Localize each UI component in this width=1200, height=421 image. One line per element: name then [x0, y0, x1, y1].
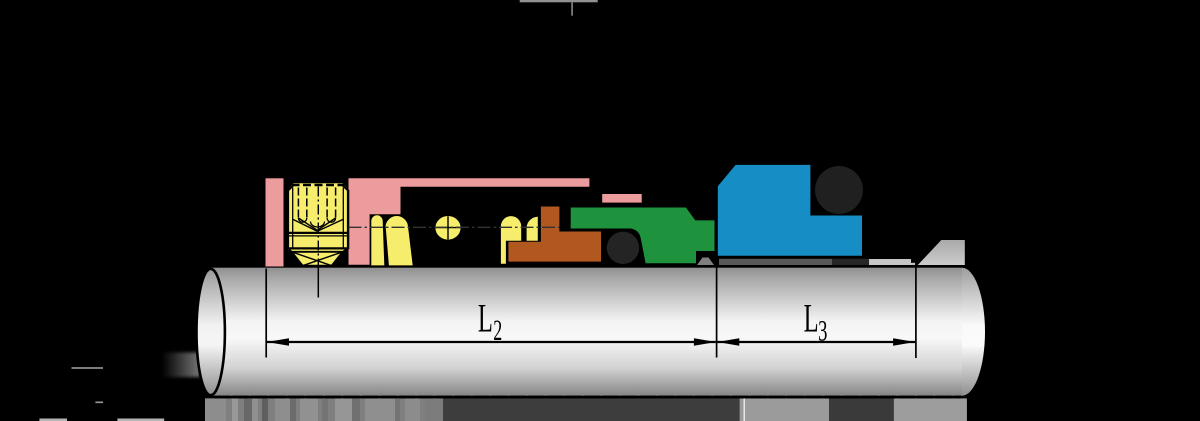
- svg-text:2: 2: [493, 314, 502, 347]
- svg-text:L: L: [804, 296, 819, 341]
- svg-text:3: 3: [818, 315, 827, 347]
- svg-text:L: L: [478, 296, 493, 341]
